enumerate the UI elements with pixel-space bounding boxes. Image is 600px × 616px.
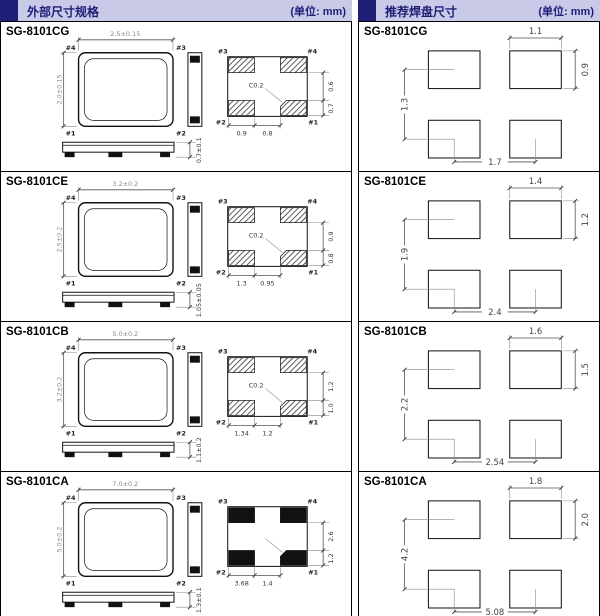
model-name: SG-8101CB — [6, 326, 69, 338]
package-drawing: 3.2±0.2 2.5±0.2 #4 #3 #1 #2 — [1, 172, 351, 321]
dim-thickness: 1.3±0.1 — [195, 587, 203, 613]
electrode-pad-chamfered — [280, 100, 306, 115]
electrode-pad — [280, 58, 306, 73]
land-pattern-drawing: 1.6 1.5 2.2 2.54 — [359, 322, 599, 471]
pin-label-top-right: #3 — [176, 344, 186, 352]
pin-label-bottom-right: #1 — [308, 418, 318, 426]
chamfer-leader — [265, 539, 282, 553]
dim-body-width: 7.0±0.2 — [112, 480, 138, 488]
extension-line — [308, 523, 329, 566]
leader-line — [405, 520, 455, 589]
dim-pad-height: 0.8 — [327, 253, 335, 263]
land-pad — [510, 201, 562, 239]
dim-land-horizontal-pitch: 2.4 — [488, 307, 501, 317]
pin-label-bottom-right: #1 — [308, 568, 318, 576]
package-lid — [85, 509, 168, 571]
dim-thickness: 1.1±0.2 — [195, 437, 203, 463]
extension-line — [176, 292, 196, 307]
recommended-pads-column: 推荐焊盘尺寸 (单位: mm) SG-8101CG 1.1 0.9 — [358, 0, 600, 616]
land-pattern: 1.4 1.2 1.9 2.4 — [400, 176, 590, 317]
front-foot — [65, 452, 75, 457]
package-outline — [79, 203, 173, 277]
land-pattern-drawing: 1.4 1.2 1.9 2.4 — [359, 172, 599, 321]
extension-line — [563, 501, 579, 539]
dim-land-vertical-pitch: 2.2 — [400, 398, 410, 411]
extension-line — [510, 185, 562, 199]
land-pad — [510, 501, 562, 539]
pin-label-bottom-left: #2 — [216, 268, 226, 276]
electrode-pad — [229, 208, 255, 223]
front-foot — [160, 302, 170, 307]
external-dimensions-column: 外部尺寸规格 (单位: mm) SG-8101CG 2.5±0.15 2.0±0… — [0, 0, 352, 616]
front-foot — [65, 302, 75, 307]
dim-pad-gap-horizontal: 1.4 — [262, 579, 272, 587]
extension-line — [510, 335, 562, 349]
header-accent-square — [358, 0, 376, 22]
model-name: SG-8101CG — [364, 26, 427, 38]
bottom-view: #3 #4 #2 #1 C0.2 0.9 0.8 1.3 0.95 — [216, 198, 335, 288]
package-drawing: 5.0±0.2 3.2±0.2 #4 #3 #1 #2 — [1, 322, 351, 471]
pin-label-bottom-left: #1 — [66, 279, 76, 287]
extension-line — [563, 201, 579, 239]
model-name: SG-8101CE — [6, 176, 68, 188]
left-section-unit: (单位: mm) — [290, 3, 346, 19]
dim-land-pad-height: 1.2 — [580, 213, 590, 226]
electrode-pad-chamfered — [280, 400, 306, 415]
land-pattern-cell: SG-8101CA 1.8 2.0 4.2 — [358, 471, 600, 616]
dim-pad-width: 1.34 — [234, 429, 248, 437]
package-lid — [85, 359, 168, 421]
side-view — [188, 503, 202, 577]
model-name: SG-8101CA — [6, 476, 69, 488]
right-section-title: 推荐焊盘尺寸 — [385, 3, 457, 20]
dim-body-width: 5.0±0.2 — [112, 330, 138, 338]
front-foot — [65, 602, 75, 607]
electrode-pad — [280, 508, 306, 523]
package-outline — [79, 353, 173, 427]
front-view: 1.1±0.2 — [63, 437, 203, 463]
land-pattern: 1.6 1.5 2.2 2.54 — [400, 326, 590, 467]
side-outline — [188, 503, 202, 577]
extension-line — [510, 485, 562, 499]
electrode-pad — [229, 58, 255, 73]
dim-body-height: 5.0±0.2 — [56, 527, 64, 553]
pin-label-bottom-left: #2 — [216, 418, 226, 426]
dim-body-height: 3.2±0.2 — [56, 377, 64, 403]
dim-land-pad-width: 1.6 — [529, 326, 542, 336]
pin-label-top-left: #4 — [66, 344, 76, 352]
pin-label-top-right: #3 — [176, 44, 186, 52]
pin-label-top-right: #3 — [176, 494, 186, 502]
chamfer-leader — [265, 239, 282, 253]
land-pattern-drawing: 1.8 2.0 4.2 5.08 — [359, 472, 599, 616]
bottom-view: #3 #4 #2 #1 2.6 1.2 3.68 1.4 — [216, 498, 335, 588]
front-foot — [65, 152, 75, 157]
front-foot — [108, 602, 122, 607]
top-view: 3.2±0.2 2.5±0.2 #4 #3 #1 #2 — [56, 180, 186, 287]
pin-label-bottom-right: #1 — [308, 118, 318, 126]
chamfer-leader — [265, 89, 282, 103]
chamfer-label: C0.2 — [249, 82, 264, 90]
pin-label-top-right: #4 — [307, 348, 317, 356]
front-foot — [160, 452, 170, 457]
bottom-view: #3 #4 #2 #1 C0.2 0.6 0.7 0.9 0.8 — [216, 48, 335, 138]
front-foot — [108, 152, 122, 157]
left-section-header: 外部尺寸规格 (单位: mm) — [0, 0, 352, 22]
extension-line — [308, 73, 329, 116]
pin-label-bottom-right: #2 — [176, 279, 186, 287]
electrode-pad — [229, 508, 255, 523]
front-foot — [160, 602, 170, 607]
side-outline — [188, 203, 202, 277]
front-outline — [63, 142, 174, 152]
package-lid — [85, 209, 168, 271]
front-outline — [63, 442, 174, 452]
model-name: SG-8101CG — [6, 26, 69, 38]
pin-label-top-left: #3 — [218, 498, 228, 506]
side-pad — [190, 116, 200, 123]
dim-pad-height: 0.7 — [327, 103, 335, 113]
side-pad — [190, 266, 200, 273]
dim-land-pad-width: 1.1 — [529, 26, 542, 36]
pin-label-top-left: #4 — [66, 494, 76, 502]
land-pattern: 1.8 2.0 4.2 5.08 — [400, 476, 590, 616]
dim-body-width: 3.2±0.2 — [112, 180, 138, 188]
dim-body-height: 2.5±0.2 — [56, 227, 64, 253]
pin-label-top-left: #3 — [218, 48, 228, 56]
extension-line — [79, 337, 173, 351]
dim-pad-height: 1.0 — [327, 403, 335, 413]
extension-line — [563, 351, 579, 389]
side-outline — [188, 353, 202, 427]
extension-line — [229, 117, 281, 128]
dim-land-vertical-pitch: 4.2 — [400, 548, 410, 561]
side-pad — [190, 206, 200, 213]
extension-line — [176, 592, 196, 607]
dim-pad-gap-horizontal: 1.2 — [262, 429, 272, 437]
front-foot — [160, 152, 170, 157]
leader-line — [405, 220, 455, 289]
dim-land-pad-width: 1.8 — [529, 476, 542, 486]
extension-line — [229, 267, 281, 278]
extension-line — [79, 487, 173, 501]
dim-land-pad-width: 1.4 — [529, 176, 542, 186]
dim-pad-width: 1.3 — [236, 279, 246, 287]
dim-body-width: 2.5±0.15 — [110, 30, 140, 38]
pin-label-top-left: #3 — [218, 198, 228, 206]
land-pattern-cell: SG-8101CB 1.6 1.5 2.2 — [358, 321, 600, 472]
pin-label-top-left: #3 — [218, 348, 228, 356]
datasheet-page: 外部尺寸规格 (单位: mm) SG-8101CG 2.5±0.15 2.0±0… — [0, 0, 600, 616]
right-section-unit: (单位: mm) — [538, 3, 594, 19]
dim-pad-width: 0.9 — [236, 129, 246, 137]
side-pad — [190, 416, 200, 423]
extension-line — [510, 35, 562, 49]
pin-label-top-right: #3 — [176, 194, 186, 202]
top-view: 5.0±0.2 3.2±0.2 #4 #3 #1 #2 — [56, 330, 186, 437]
extension-line — [79, 37, 173, 51]
dim-pad-gap-vertical: 2.6 — [327, 531, 335, 541]
extension-line — [229, 417, 281, 428]
leader-line — [405, 70, 455, 139]
front-view: 1.05±0.05 — [63, 283, 203, 317]
side-pad — [190, 56, 200, 63]
front-outline — [63, 592, 174, 602]
dim-land-horizontal-pitch: 5.08 — [486, 607, 505, 616]
package-drawing: 7.0±0.2 5.0±0.2 #4 #3 #1 #2 — [1, 472, 351, 616]
side-outline — [188, 53, 202, 127]
chamfer-label: C0.2 — [249, 382, 264, 390]
pin-label-bottom-left: #1 — [66, 129, 76, 137]
pin-label-bottom-right: #2 — [176, 129, 186, 137]
extension-line — [176, 142, 196, 157]
package-lid — [85, 59, 168, 121]
dim-land-pad-height: 0.9 — [580, 63, 590, 76]
land-pad — [510, 351, 562, 389]
side-view — [188, 53, 202, 127]
front-view: 0.7±0.1 — [63, 137, 203, 163]
electrode-pad — [280, 358, 306, 373]
pin-label-bottom-right: #2 — [176, 579, 186, 587]
side-pad — [190, 506, 200, 513]
dim-thickness: 1.05±0.05 — [195, 283, 203, 317]
land-pad — [510, 51, 562, 89]
dim-pad-gap-horizontal: 0.8 — [262, 129, 272, 137]
electrode-pad — [229, 358, 255, 373]
land-pattern-cell: SG-8101CG 1.1 0.9 1.3 — [358, 21, 600, 172]
pin-label-top-left: #4 — [66, 194, 76, 202]
pin-label-bottom-left: #2 — [216, 118, 226, 126]
extension-line — [563, 51, 579, 89]
electrode-pad — [229, 550, 255, 565]
package-outline — [79, 53, 173, 127]
chamfer-leader — [265, 389, 282, 403]
model-name: SG-8101CA — [364, 476, 427, 488]
package-outline — [79, 503, 173, 577]
electrode-pad — [280, 208, 306, 223]
pin-label-bottom-left: #2 — [216, 568, 226, 576]
pin-label-bottom-left: #1 — [66, 579, 76, 587]
extension-line — [176, 442, 196, 457]
pin-label-top-right: #4 — [307, 48, 317, 56]
dim-pad-gap-horizontal: 0.95 — [260, 279, 274, 287]
side-pad — [190, 356, 200, 363]
dim-land-pad-height: 2.0 — [580, 513, 590, 526]
pin-label-bottom-right: #1 — [308, 268, 318, 276]
dim-land-pad-height: 1.5 — [580, 363, 590, 376]
bottom-view: #3 #4 #2 #1 C0.2 1.2 1.0 1.34 1.2 — [216, 348, 335, 438]
dim-pad-gap-vertical: 0.6 — [327, 81, 335, 91]
dim-land-horizontal-pitch: 1.7 — [488, 157, 501, 167]
electrode-pad — [229, 100, 255, 115]
dim-pad-gap-vertical: 0.9 — [327, 231, 335, 241]
electrode-pad — [229, 400, 255, 415]
package-drawing: 2.5±0.15 2.0±0.15 #4 #3 #1 #2 — [1, 22, 351, 171]
land-pattern-cell: SG-8101CE 1.4 1.2 1.9 — [358, 171, 600, 322]
model-name: SG-8101CE — [364, 176, 426, 188]
package-spec-cell: SG-8101CA 7.0±0.2 5.0±0.2 #4 #3 #1 #2 — [0, 471, 352, 616]
package-spec-cell: SG-8101CB 5.0±0.2 3.2±0.2 #4 #3 #1 #2 — [0, 321, 352, 472]
pin-label-bottom-right: #2 — [176, 429, 186, 437]
electrode-pad-chamfered — [280, 550, 306, 565]
pin-label-top-right: #4 — [307, 498, 317, 506]
pin-label-bottom-left: #1 — [66, 429, 76, 437]
side-view — [188, 203, 202, 277]
front-foot — [108, 302, 122, 307]
right-section-header: 推荐焊盘尺寸 (单位: mm) — [358, 0, 600, 22]
extension-line — [308, 223, 329, 266]
header-accent-square — [0, 0, 18, 22]
dim-thickness: 0.7±0.1 — [195, 137, 203, 163]
top-view: 7.0±0.2 5.0±0.2 #4 #3 #1 #2 — [56, 480, 186, 587]
dim-pad-width: 3.68 — [234, 579, 248, 587]
front-outline — [63, 292, 174, 302]
front-foot — [108, 452, 122, 457]
left-section-title: 外部尺寸规格 — [27, 3, 99, 20]
extension-line — [229, 567, 281, 578]
front-view: 1.3±0.1 — [63, 587, 203, 613]
top-view: 2.5±0.15 2.0±0.15 #4 #3 #1 #2 — [56, 30, 186, 137]
model-name: SG-8101CB — [364, 326, 427, 338]
electrode-pad — [229, 250, 255, 265]
extension-line — [308, 373, 329, 416]
dim-pad-gap-vertical: 1.2 — [327, 381, 335, 391]
pin-label-top-right: #4 — [307, 198, 317, 206]
dim-land-vertical-pitch: 1.3 — [400, 98, 410, 111]
package-spec-cell: SG-8101CG 2.5±0.15 2.0±0.15 #4 #3 #1 #2 — [0, 21, 352, 172]
dim-pad-height: 1.2 — [327, 553, 335, 563]
electrode-pad-chamfered — [280, 250, 306, 265]
dim-land-horizontal-pitch: 2.54 — [486, 457, 505, 467]
package-spec-cell: SG-8101CE 3.2±0.2 2.5±0.2 #4 #3 #1 #2 — [0, 171, 352, 322]
dim-land-vertical-pitch: 1.9 — [400, 248, 410, 261]
pin-label-top-left: #4 — [66, 44, 76, 52]
extension-line — [79, 187, 173, 201]
side-view — [188, 353, 202, 427]
land-pattern-drawing: 1.1 0.9 1.3 1.7 — [359, 22, 599, 171]
leader-line — [405, 370, 455, 439]
land-pattern: 1.1 0.9 1.3 1.7 — [400, 26, 590, 167]
chamfer-label: C0.2 — [249, 232, 264, 240]
dim-body-height: 2.0±0.15 — [56, 75, 64, 105]
side-pad — [190, 566, 200, 573]
